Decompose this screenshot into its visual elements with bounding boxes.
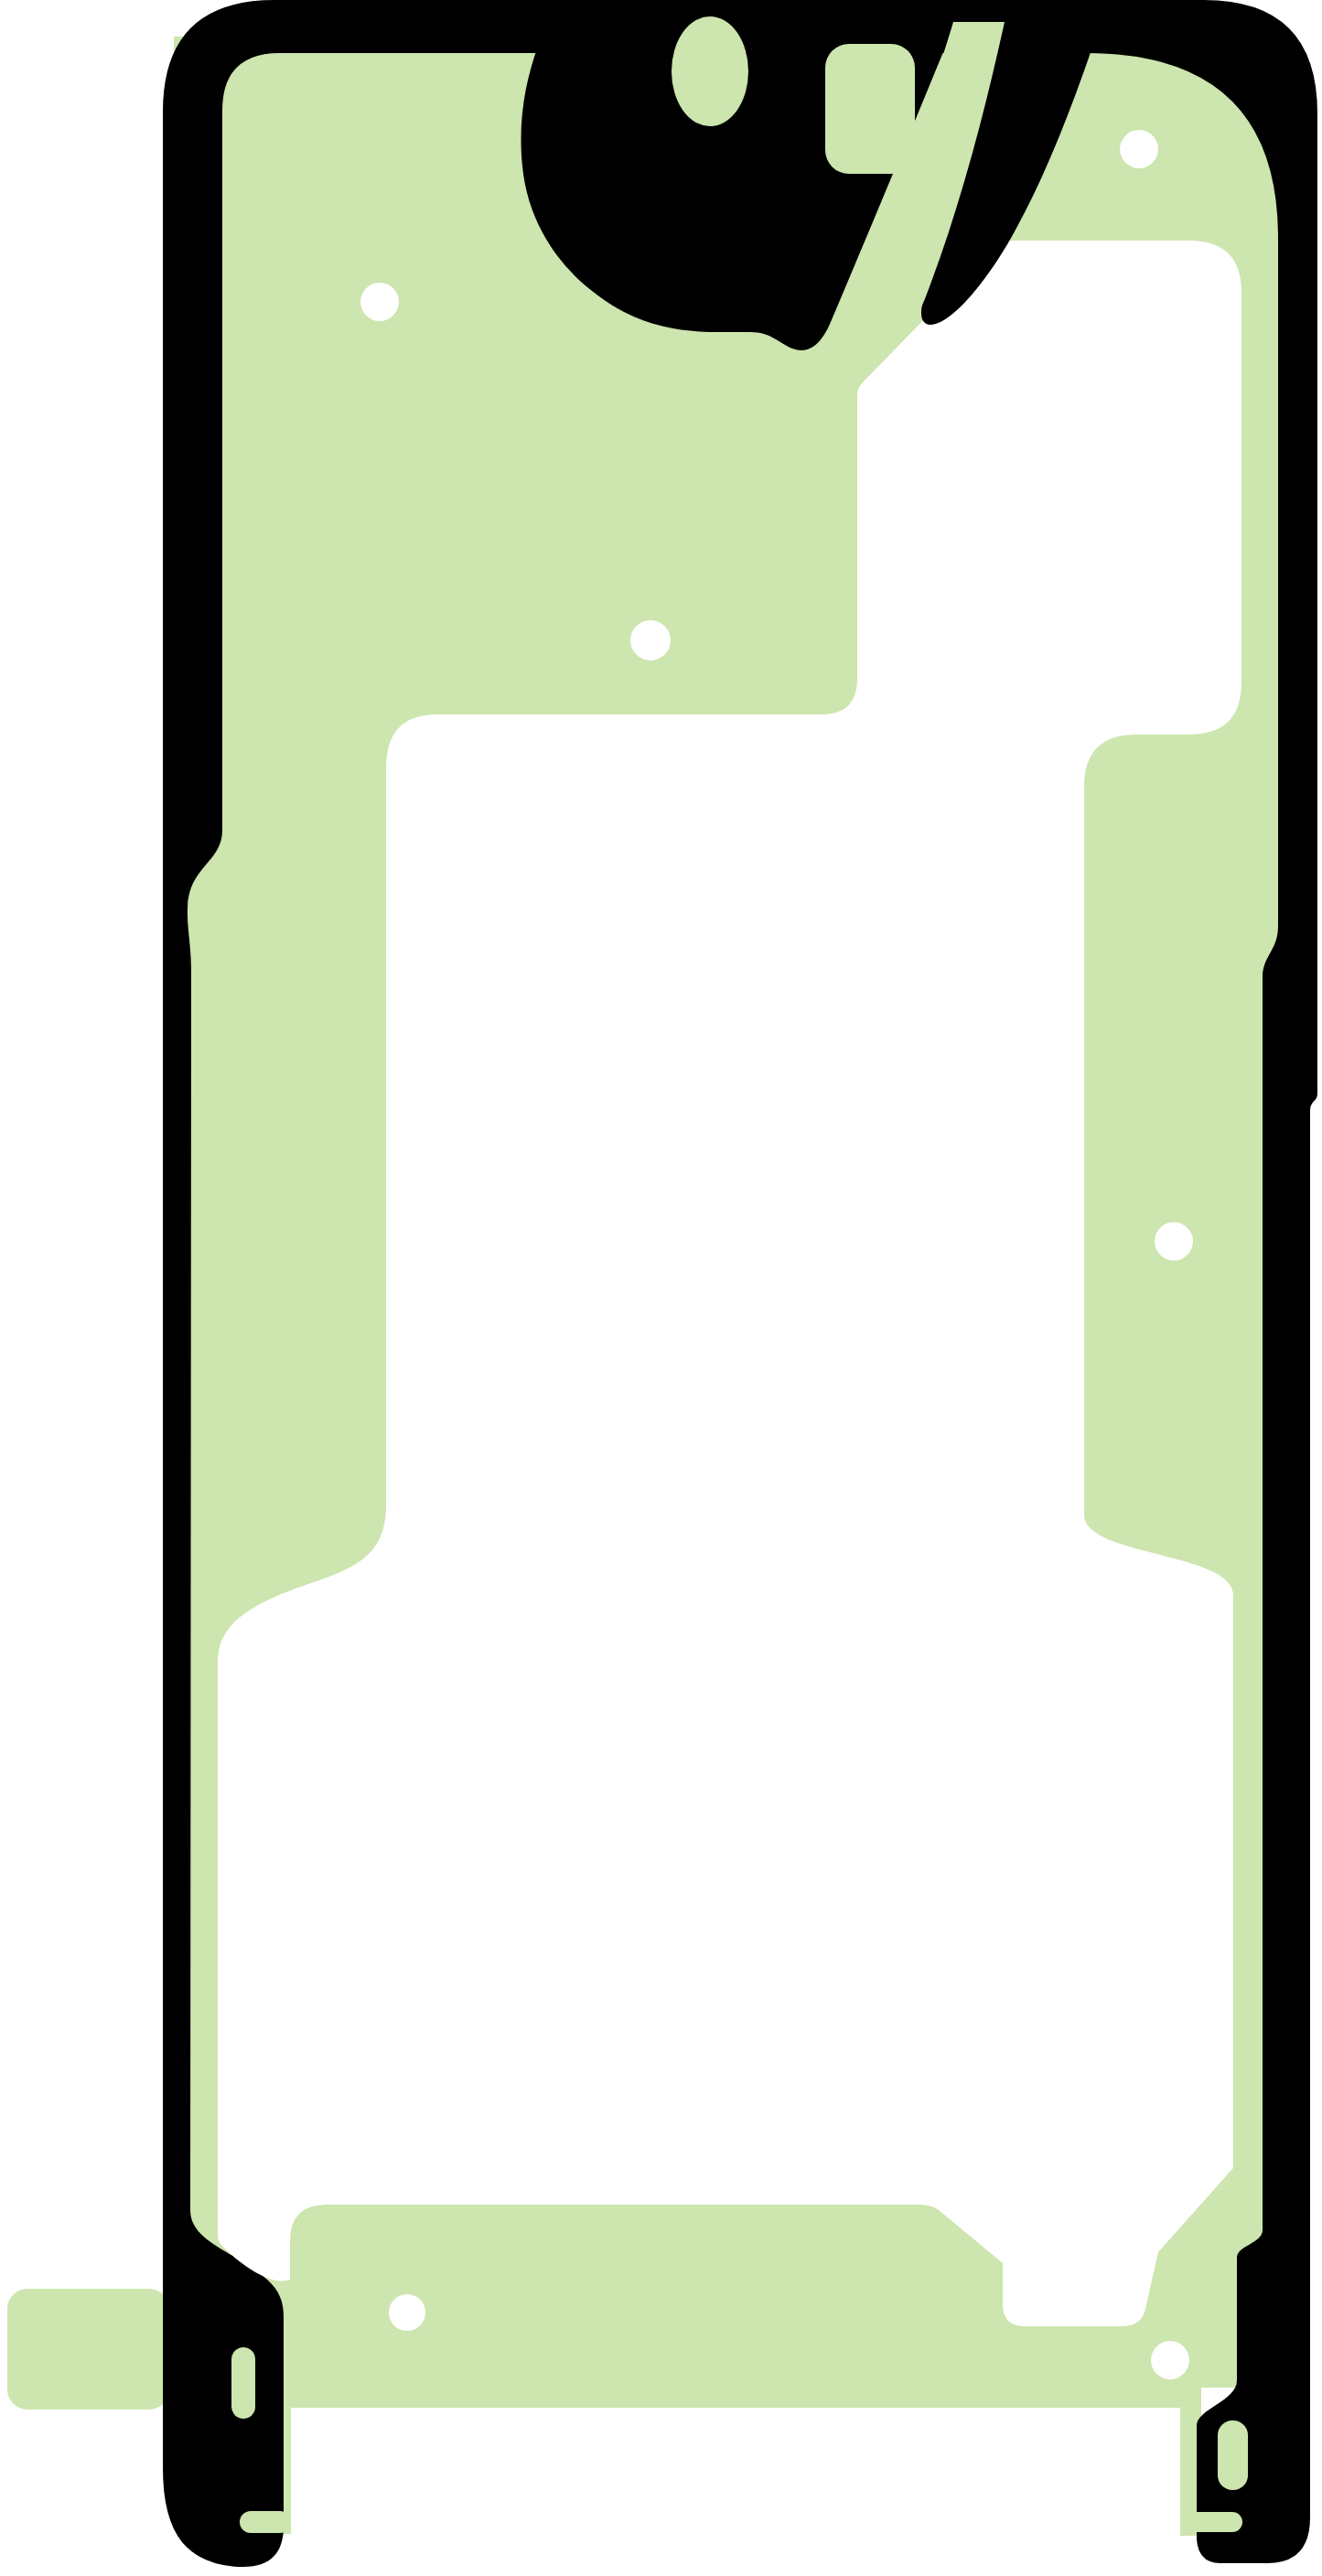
right-capsule-slot	[1218, 2420, 1248, 2490]
adhesive-sticker-illustration	[0, 0, 1322, 2576]
alignment-hole	[389, 2294, 425, 2331]
pull-tab	[7, 2289, 169, 2410]
left-notch	[240, 2511, 291, 2533]
right-notch	[1186, 2512, 1242, 2532]
product-image-stage	[0, 0, 1322, 2576]
oval-camera-hole	[672, 16, 748, 126]
left-capsule-slot	[231, 2347, 255, 2419]
alignment-hole	[1155, 1222, 1193, 1261]
alignment-hole	[360, 283, 399, 321]
rounded-square-sensor-hole	[825, 44, 915, 174]
alignment-hole	[630, 620, 671, 660]
alignment-hole	[1151, 2341, 1189, 2379]
alignment-hole	[1120, 130, 1158, 168]
